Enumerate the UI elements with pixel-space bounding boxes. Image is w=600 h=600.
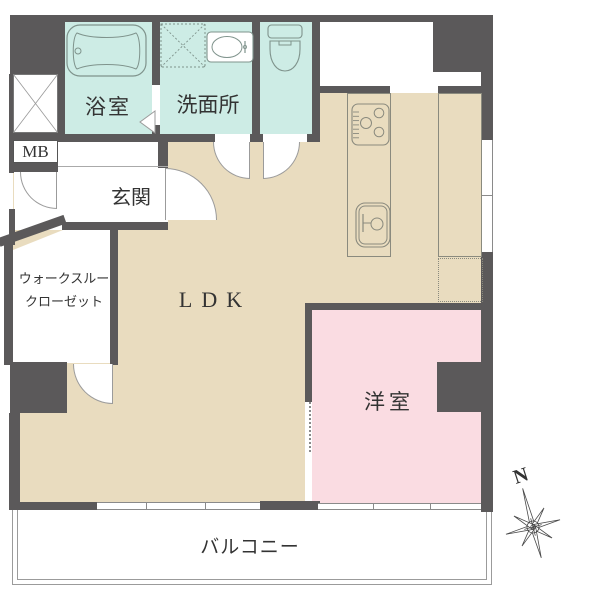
- wall-toilet-right: [312, 22, 320, 134]
- wall-western-top: [305, 303, 493, 310]
- washroom-label: 洗面所: [163, 89, 253, 119]
- wall-mb-top: [13, 133, 58, 140]
- wall-mb-bottom: [13, 163, 58, 172]
- wall-alcove-bottom-a: [316, 86, 390, 93]
- wall-bath-wash-upper: [152, 22, 160, 85]
- kitchen-counter-right: [438, 93, 482, 257]
- wall-right-upper: [481, 22, 493, 140]
- wall-left-lower: [9, 413, 20, 510]
- gas-stove-icon: [350, 102, 392, 147]
- kitchen-sink-icon: [354, 201, 392, 249]
- wall-wetrooms-bottom-c: [307, 134, 320, 142]
- washing-machine-space-icon: [160, 23, 206, 68]
- wall-bottom-mid: [260, 501, 320, 510]
- bathtub-icon: [66, 24, 148, 78]
- pipe-shaft-box: [13, 74, 58, 133]
- wall-western-left: [305, 303, 312, 402]
- floor-plan: MB: [0, 0, 600, 600]
- ldk-label: LDK: [150, 287, 280, 313]
- vanity-sink-icon: [206, 31, 254, 63]
- balcony-label: バルコニー: [188, 532, 312, 559]
- alcove-void-2: [433, 72, 481, 87]
- window-east: [481, 140, 493, 252]
- refrigerator-space: [438, 258, 483, 302]
- window-mullion: [205, 502, 206, 510]
- bath-label: 浴室: [63, 91, 153, 121]
- wall-bottom-left: [12, 502, 97, 510]
- closet-label-line1: ウォークスルー: [16, 268, 112, 287]
- window-western-south: [318, 503, 481, 510]
- meter-box: MB: [13, 140, 58, 163]
- alcove-void: [320, 22, 433, 87]
- window-ldk-south: [97, 502, 260, 510]
- compass-rose: [491, 485, 575, 569]
- wall-block-bottom-left: [10, 362, 67, 413]
- window-mullion: [146, 502, 147, 510]
- wall-western-notch: [437, 362, 493, 412]
- toilet-icon: [266, 24, 304, 76]
- closet-label-line2: クローゼット: [16, 291, 112, 310]
- meter-box-label: MB: [14, 142, 57, 162]
- wall-wetrooms-bottom-a: [55, 134, 215, 142]
- western-room-opening-dashed-line: [309, 402, 312, 452]
- entrance-label: 玄関: [86, 181, 176, 210]
- window-mullion: [481, 195, 493, 196]
- wall-entrance-stub: [158, 134, 168, 168]
- window-mullion: [430, 503, 431, 510]
- wall-wetrooms-bottom-b: [250, 134, 263, 142]
- wall-left-closet: [4, 243, 13, 365]
- window-mullion: [373, 503, 374, 510]
- entrance-step-line: [58, 166, 168, 167]
- wall-top: [10, 15, 493, 22]
- western-room-label: 洋室: [344, 386, 434, 416]
- wall-alcove-bottom-b: [438, 86, 483, 93]
